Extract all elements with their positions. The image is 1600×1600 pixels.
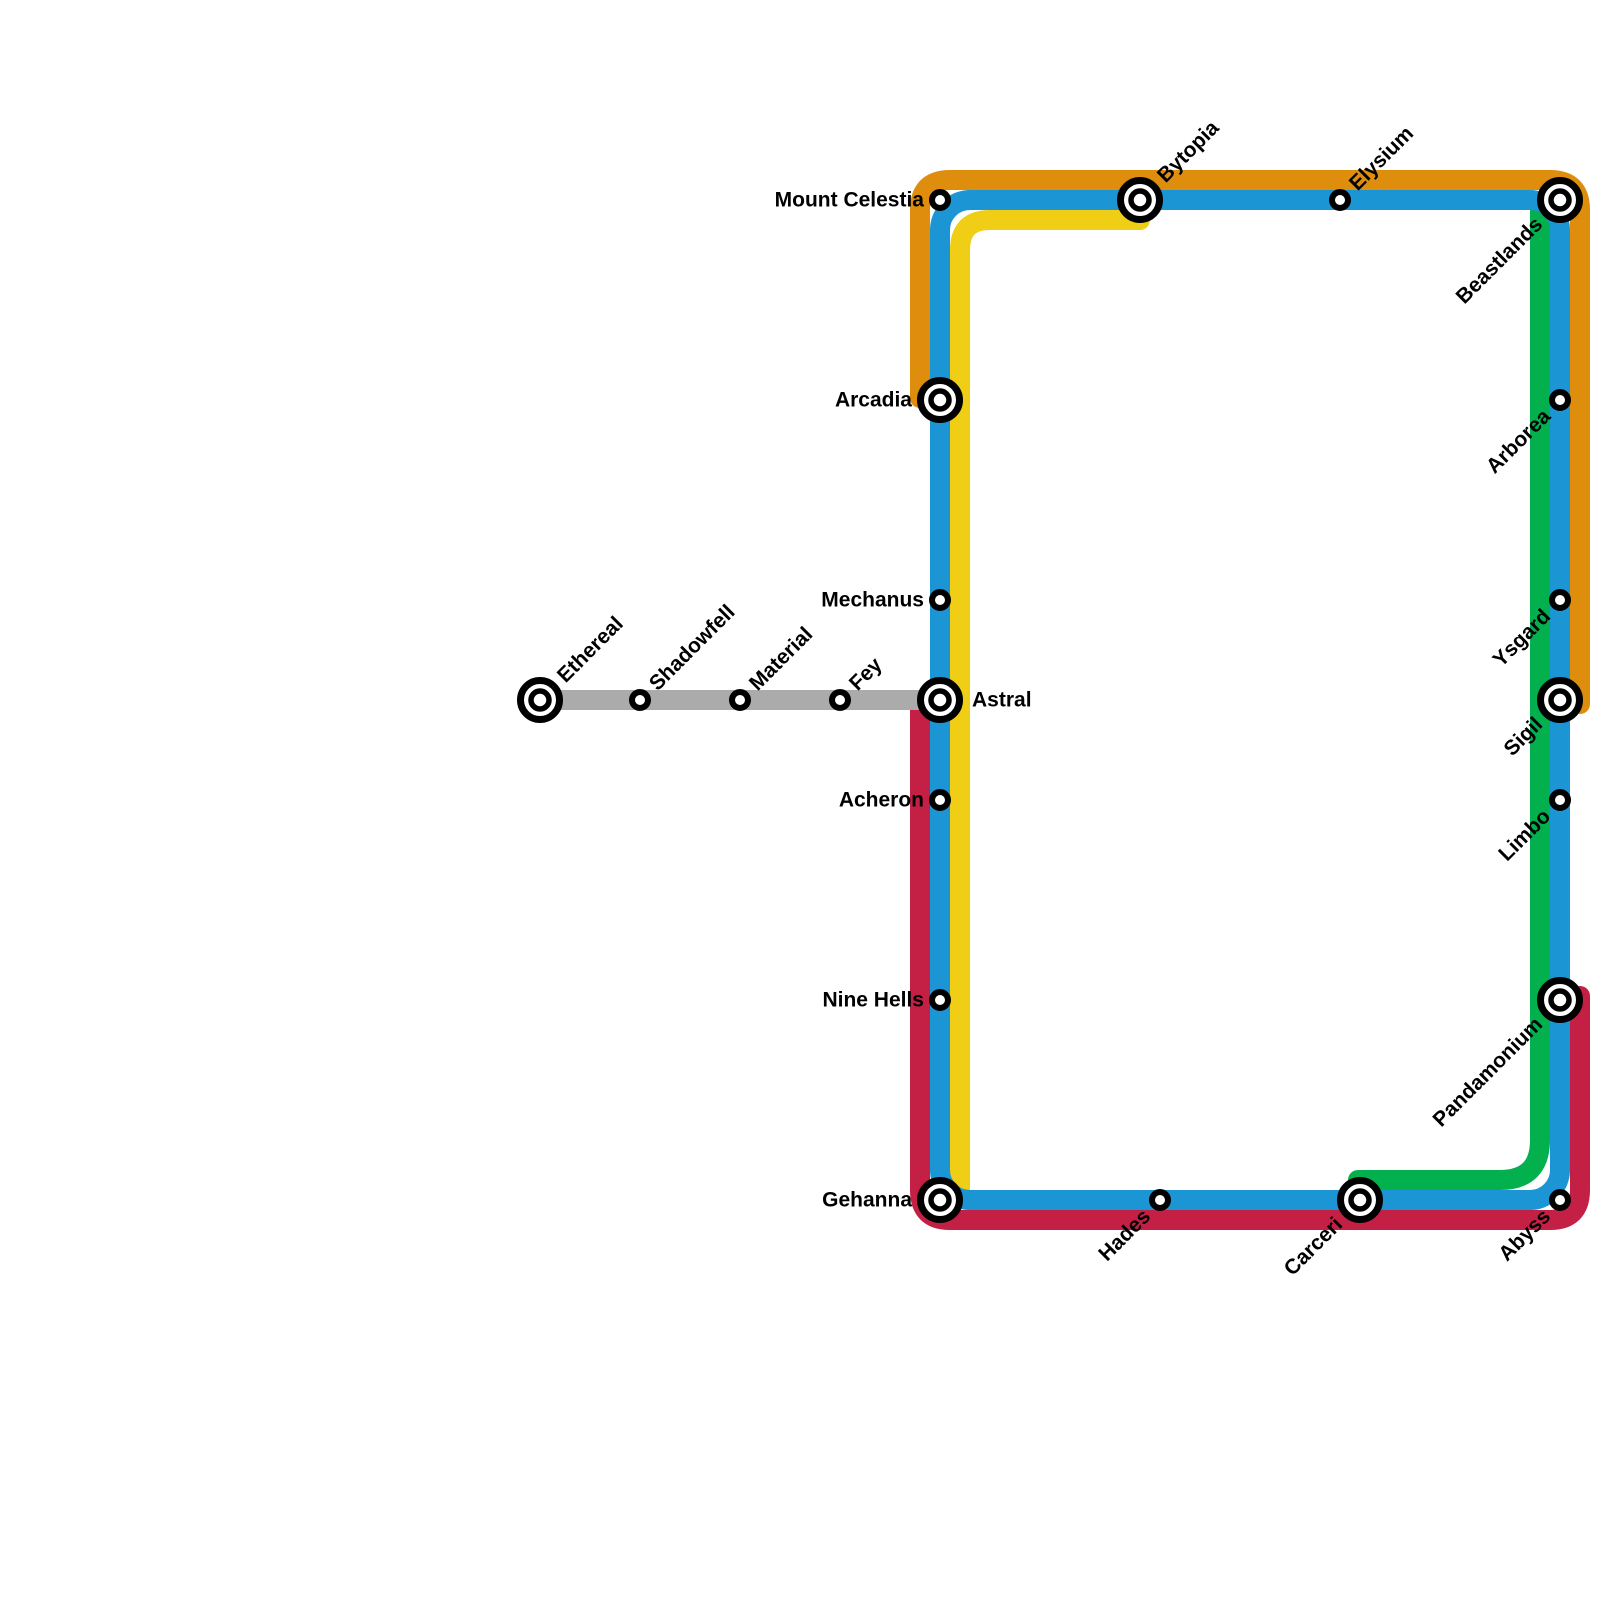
station-material (732, 692, 748, 708)
station-acheron (932, 792, 948, 808)
station-label-gehanna: Gehanna (822, 1189, 912, 1212)
station-bytopia (1121, 181, 1160, 220)
orange-line (920, 180, 1580, 704)
station-shadowfell (632, 692, 648, 708)
station-ethereal (521, 681, 560, 720)
station-gehanna (921, 1181, 960, 1220)
red-line (920, 706, 1580, 1220)
station-label-nine-hells: Nine Hells (822, 989, 924, 1012)
station-arcadia (921, 381, 960, 420)
station-label-arcadia: Arcadia (835, 389, 912, 412)
station-mechanus (932, 592, 948, 608)
station-abyss (1552, 1192, 1568, 1208)
station-astral (921, 681, 960, 720)
station-elysium (1332, 192, 1348, 208)
transit-map-canvas: Mount CelestiaBytopiaElysiumBeastlandsAr… (0, 0, 1600, 1600)
station-label-fey: Fey (845, 653, 887, 695)
blue-loop-line (940, 200, 1560, 1200)
station-label-shadowfell: Shadowfell (645, 600, 740, 695)
station-beastlands (1541, 181, 1580, 220)
station-label-acheron: Acheron (839, 789, 924, 812)
station-nine-hells (932, 992, 948, 1008)
station-arborea (1552, 392, 1568, 408)
station-label-pandamonium: Pandamonium (1429, 1013, 1548, 1132)
station-carceri (1341, 1181, 1380, 1220)
station-label-material: Material (745, 623, 817, 695)
station-limbo (1552, 792, 1568, 808)
station-label-mechanus: Mechanus (821, 589, 924, 612)
station-pandamonium (1541, 981, 1580, 1020)
station-sigil (1541, 681, 1580, 720)
station-label-ethereal: Ethereal (553, 612, 628, 687)
station-label-astral: Astral (972, 689, 1032, 712)
station-fey (832, 692, 848, 708)
station-label-mount-celestia: Mount Celestia (775, 189, 925, 212)
station-hades (1152, 1192, 1168, 1208)
planescape-transit-map: Mount CelestiaBytopiaElysiumBeastlandsAr… (0, 0, 1600, 1600)
station-mount-celestia (932, 192, 948, 208)
station-ysgard (1552, 592, 1568, 608)
